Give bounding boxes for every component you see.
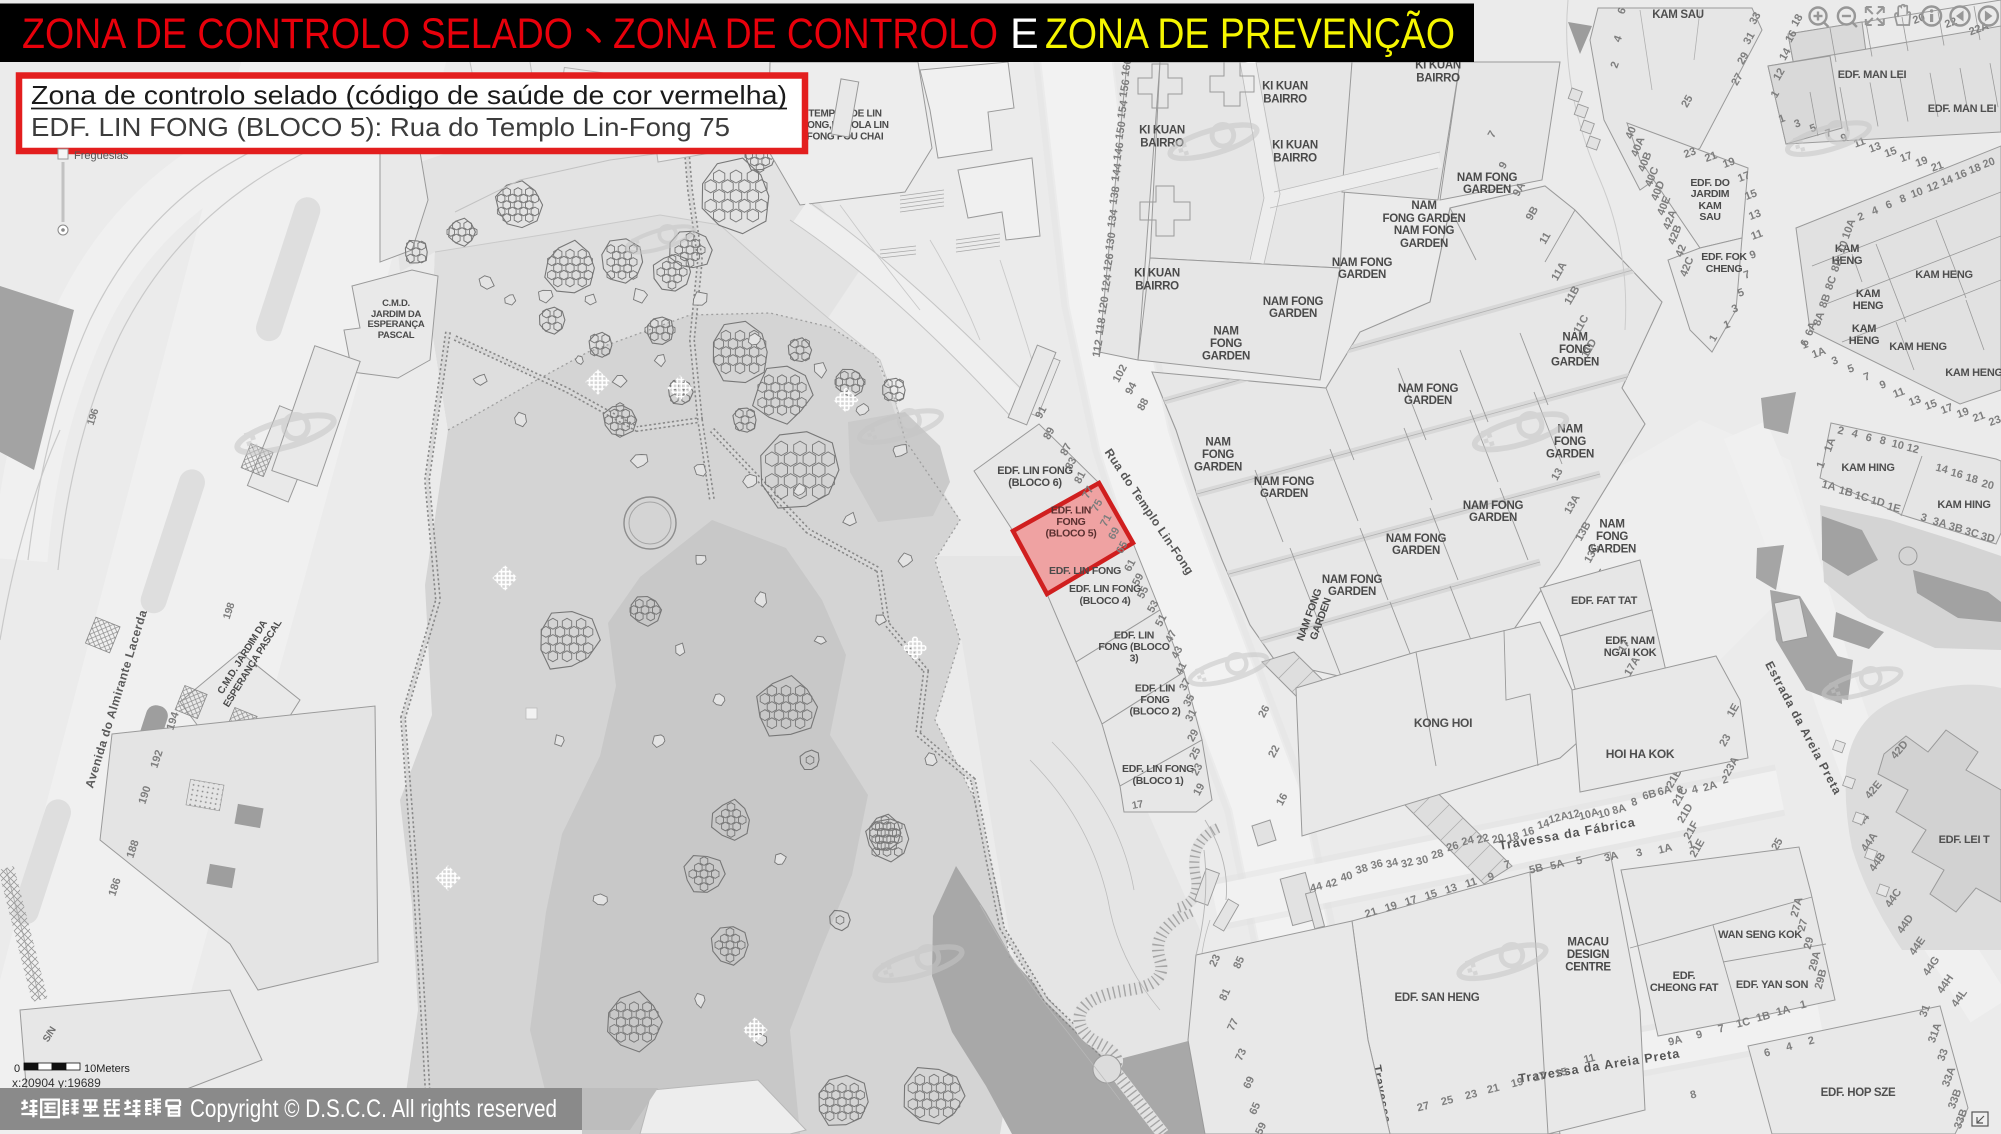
svg-text:NAM FONG: NAM FONG: [1254, 476, 1315, 488]
svg-text:Freguesias: Freguesias: [74, 150, 129, 162]
svg-text:NAM FONG: NAM FONG: [1322, 574, 1383, 586]
svg-text:HENG: HENG: [1849, 335, 1880, 347]
svg-text:FONG (BLOCO: FONG (BLOCO: [1098, 641, 1169, 653]
svg-text:(BLOCO 5): (BLOCO 5): [1046, 528, 1097, 540]
svg-text:NAM FONG: NAM FONG: [1398, 383, 1459, 395]
svg-text:EDF. LIN FONG: EDF. LIN FONG: [997, 465, 1073, 477]
svg-text:FONG: FONG: [1210, 338, 1242, 350]
svg-text:NAM FONG: NAM FONG: [1457, 172, 1518, 184]
svg-text:(BLOCO 6): (BLOCO 6): [1008, 477, 1062, 489]
svg-text:EDF. LIN FONG (BLOCO 5): Rua d: EDF. LIN FONG (BLOCO 5): Rua do Templo L…: [31, 112, 730, 142]
svg-text:Copyright © D.S.C.C. All right: Copyright © D.S.C.C. All rights reserved: [190, 1095, 557, 1123]
svg-text:KAM HING: KAM HING: [1937, 499, 1990, 511]
svg-text:NAM: NAM: [1562, 332, 1587, 344]
svg-text:ZONA DE CONTROLO SELADO: ZONA DE CONTROLO SELADO: [22, 10, 573, 58]
svg-text:KAM HENG: KAM HENG: [1915, 269, 1973, 281]
svg-text:GARDEN: GARDEN: [1194, 462, 1242, 474]
svg-text:WAN SENG KOK: WAN SENG KOK: [1718, 929, 1802, 941]
svg-text:FONG: FONG: [1056, 516, 1085, 528]
svg-text:NAM: NAM: [1599, 519, 1624, 531]
svg-text:KI KUAN: KI KUAN: [1139, 125, 1185, 137]
svg-text:MACAU: MACAU: [1567, 937, 1608, 949]
svg-text:KONG HOI: KONG HOI: [1414, 716, 1472, 730]
svg-text:FONG: FONG: [1554, 436, 1586, 448]
svg-text:(BLOCO 1): (BLOCO 1): [1133, 775, 1184, 787]
svg-text:EDF. LEI T: EDF. LEI T: [1939, 834, 1990, 846]
svg-text:EDF. LIN: EDF. LIN: [1135, 683, 1175, 695]
svg-text:(BLOCO 4): (BLOCO 4): [1080, 595, 1131, 607]
svg-text:E: E: [1010, 10, 1039, 58]
svg-text:JARDIM: JARDIM: [1691, 188, 1730, 200]
svg-text:KAM: KAM: [1698, 200, 1722, 212]
svg-text:EDF. MAN LEI: EDF. MAN LEI: [1838, 69, 1907, 81]
svg-text:GARDEN: GARDEN: [1400, 238, 1448, 250]
svg-text:KAM: KAM: [1856, 288, 1880, 300]
svg-text:EDF. LIN FONG: EDF. LIN FONG: [1049, 565, 1121, 577]
svg-text:10Meters: 10Meters: [84, 1063, 130, 1075]
svg-text:GARDEN: GARDEN: [1202, 351, 1250, 363]
svg-text:KAM SAU: KAM SAU: [1652, 9, 1704, 21]
svg-text:ZONA DE PREVENÇÃO: ZONA DE PREVENÇÃO: [1045, 10, 1455, 58]
svg-text:NAM: NAM: [1411, 200, 1436, 212]
svg-text:EDF. LIN: EDF. LIN: [1051, 505, 1091, 517]
svg-text:EDF.: EDF.: [1673, 970, 1696, 982]
svg-text:EDF. LIN FONG: EDF. LIN FONG: [1122, 763, 1194, 775]
svg-text:NAM FONG: NAM FONG: [1386, 533, 1447, 545]
svg-text:GARDEN: GARDEN: [1404, 395, 1452, 407]
svg-text:KI KUAN: KI KUAN: [1272, 140, 1318, 152]
svg-text:(BLOCO 2): (BLOCO 2): [1130, 706, 1181, 718]
svg-text:3): 3): [1130, 653, 1139, 665]
svg-text:KAM HING: KAM HING: [1841, 462, 1894, 474]
svg-text:ESPERANÇA: ESPERANÇA: [368, 319, 425, 330]
svg-text:GARDEN: GARDEN: [1546, 449, 1594, 461]
svg-text:KAM HENG: KAM HENG: [1889, 341, 1947, 353]
svg-text:GARDEN: GARDEN: [1469, 512, 1517, 524]
svg-text:FONG GARDEN: FONG GARDEN: [1383, 213, 1466, 225]
svg-text:EDF. DO: EDF. DO: [1690, 177, 1729, 189]
svg-text:GARDEN: GARDEN: [1338, 269, 1386, 281]
svg-text:BAIRRO: BAIRRO: [1135, 281, 1179, 293]
svg-text:EDF. LIN FONG: EDF. LIN FONG: [1069, 583, 1141, 595]
svg-text:KI KUAN: KI KUAN: [1262, 81, 1308, 93]
svg-text:EDF. SAN HENG: EDF. SAN HENG: [1395, 992, 1480, 1004]
svg-text:BAIRRO: BAIRRO: [1416, 73, 1460, 85]
svg-text:DESIGN: DESIGN: [1567, 949, 1609, 961]
svg-text:EDF. HOP SZE: EDF. HOP SZE: [1821, 1087, 1896, 1099]
svg-text:SAU: SAU: [1699, 211, 1720, 223]
svg-text:EDF. FOK: EDF. FOK: [1701, 251, 1747, 263]
svg-text:EDF. FAT TAT: EDF. FAT TAT: [1571, 595, 1638, 607]
svg-text:HOI HA KOK: HOI HA KOK: [1606, 747, 1675, 761]
svg-text:CENTRE: CENTRE: [1565, 962, 1611, 974]
svg-text:FONG: FONG: [1596, 531, 1628, 543]
svg-text:NAM FONG: NAM FONG: [1332, 257, 1393, 269]
svg-text:KAM HENG: KAM HENG: [1945, 367, 2001, 379]
svg-text:KAM: KAM: [1852, 323, 1876, 335]
svg-text:GARDEN: GARDEN: [1260, 488, 1308, 500]
svg-text:GARDEN: GARDEN: [1328, 586, 1376, 598]
svg-text:NAM FONG: NAM FONG: [1263, 296, 1324, 308]
svg-text:GARDEN: GARDEN: [1269, 308, 1317, 320]
svg-text:NAM FONG: NAM FONG: [1463, 500, 1524, 512]
svg-text:C.M.D.: C.M.D.: [382, 298, 410, 309]
svg-text:FONG: FONG: [1202, 449, 1234, 461]
svg-text:0: 0: [14, 1063, 20, 1075]
svg-text:NAM FONG: NAM FONG: [1394, 225, 1455, 237]
svg-text:EDF. LIN: EDF. LIN: [1114, 630, 1154, 642]
svg-text:GARDEN: GARDEN: [1551, 357, 1599, 369]
svg-text:KI KUAN: KI KUAN: [1134, 268, 1180, 280]
svg-text:JARDIM DA: JARDIM DA: [371, 309, 422, 320]
svg-text:CHENG: CHENG: [1706, 263, 1743, 275]
svg-text:NAM: NAM: [1213, 326, 1238, 338]
svg-text:HENG: HENG: [1853, 300, 1884, 312]
svg-text:x:20904 y:19689: x:20904 y:19689: [12, 1076, 101, 1090]
svg-text:EDF. MAN LEI: EDF. MAN LEI: [1928, 103, 1997, 115]
svg-text:PASCAL: PASCAL: [378, 330, 415, 341]
svg-text:Zona de controlo selado (códig: Zona de controlo selado (código de saúde…: [31, 80, 787, 110]
svg-text:NAM: NAM: [1205, 437, 1230, 449]
svg-text:CHEONG FAT: CHEONG FAT: [1650, 982, 1719, 994]
svg-text:BAIRRO: BAIRRO: [1273, 153, 1317, 165]
svg-text:FONG: FONG: [1140, 694, 1169, 706]
svg-text:ZONA DE CONTROLO: ZONA DE CONTROLO: [613, 10, 998, 58]
svg-text:GARDEN: GARDEN: [1392, 545, 1440, 557]
svg-text:BAIRRO: BAIRRO: [1263, 94, 1307, 106]
svg-text:EDF. YAN SON: EDF. YAN SON: [1736, 979, 1809, 991]
svg-text:GARDEN: GARDEN: [1463, 184, 1511, 196]
